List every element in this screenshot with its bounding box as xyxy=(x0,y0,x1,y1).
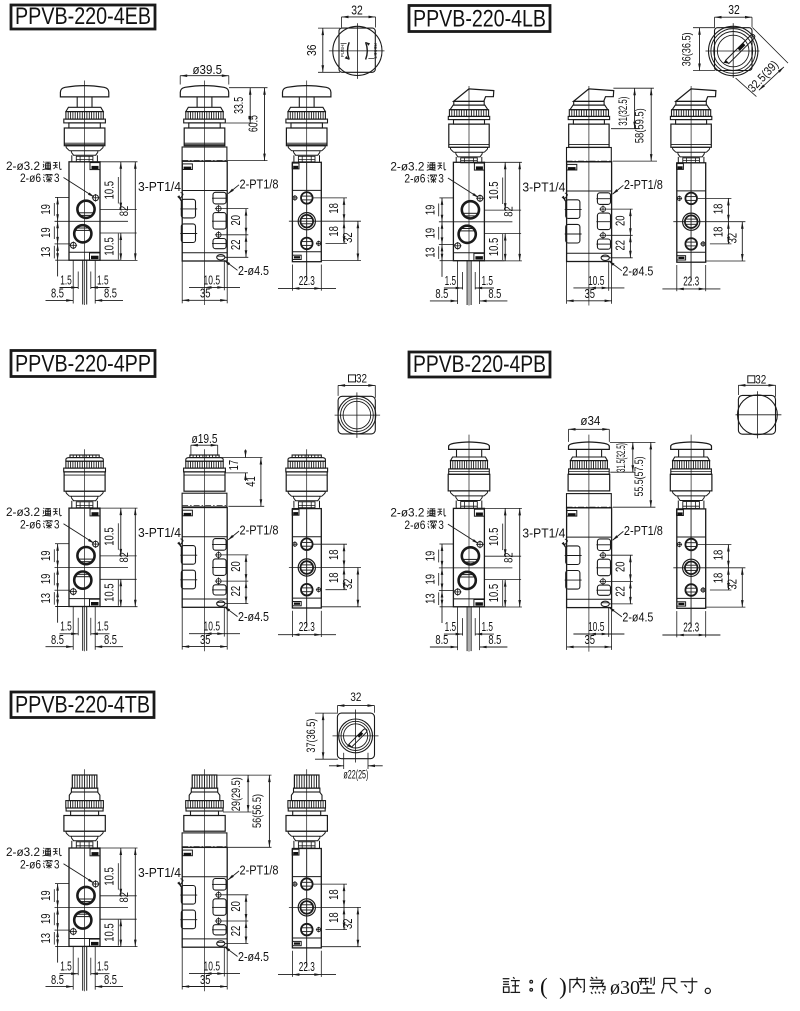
svg-text:PPVB-220-4PB: PPVB-220-4PB xyxy=(413,351,546,378)
svg-text:19: 19 xyxy=(422,551,437,562)
svg-text:1.5: 1.5 xyxy=(60,620,72,634)
svg-text:13: 13 xyxy=(422,593,437,604)
svg-text:60.5: 60.5 xyxy=(245,115,260,132)
svg-text:1.5: 1.5 xyxy=(60,960,72,974)
svg-text:18: 18 xyxy=(326,889,341,900)
svg-text:2-PT1/8: 2-PT1/8 xyxy=(624,178,663,192)
svg-text:2-ø4.5: 2-ø4.5 xyxy=(238,264,269,278)
svg-text:1.5: 1.5 xyxy=(97,620,109,634)
svg-text:2-ø4.5: 2-ø4.5 xyxy=(622,264,653,278)
svg-text:1.5: 1.5 xyxy=(481,620,493,634)
svg-text:22.3: 22.3 xyxy=(299,274,315,288)
svg-text:13: 13 xyxy=(38,247,53,258)
svg-text:2-ø6: 2-ø6 xyxy=(20,520,41,532)
svg-text:18: 18 xyxy=(710,227,725,238)
svg-text:3-PT1/4: 3-PT1/4 xyxy=(138,180,181,194)
svg-text:10.5: 10.5 xyxy=(102,237,117,255)
svg-text:3: 3 xyxy=(438,174,444,186)
svg-text:10.5: 10.5 xyxy=(204,273,221,287)
svg-text:2-ø3.2: 2-ø3.2 xyxy=(6,847,40,859)
svg-text:8.5: 8.5 xyxy=(435,633,448,647)
svg-text:32: 32 xyxy=(340,919,355,930)
svg-text:2-ø4.5: 2-ø4.5 xyxy=(238,950,269,964)
svg-text:PPVB-220-4LB: PPVB-220-4LB xyxy=(413,6,546,33)
svg-text:13: 13 xyxy=(422,247,437,258)
svg-text:10.5: 10.5 xyxy=(486,528,501,546)
svg-text:37(36.5): 37(36.5) xyxy=(304,719,318,753)
svg-text:2-PT1/8: 2-PT1/8 xyxy=(240,177,279,191)
svg-text:2-PT1/8: 2-PT1/8 xyxy=(624,524,663,538)
svg-text:19: 19 xyxy=(422,228,437,239)
svg-text:32: 32 xyxy=(350,690,361,704)
svg-text:3: 3 xyxy=(438,520,444,532)
svg-text:10.5: 10.5 xyxy=(102,527,117,545)
svg-text:18: 18 xyxy=(326,203,341,214)
svg-text:18: 18 xyxy=(710,550,725,561)
svg-text:20: 20 xyxy=(228,901,243,912)
svg-text:PUSH: PUSH xyxy=(340,45,345,58)
svg-text:32: 32 xyxy=(351,3,363,17)
svg-text:10.5: 10.5 xyxy=(486,238,501,256)
svg-text:PPVB-220-4TB: PPVB-220-4TB xyxy=(15,692,150,719)
svg-text:36(36.5): 36(36.5) xyxy=(680,32,694,66)
svg-text:ø39.5: ø39.5 xyxy=(193,63,223,77)
svg-text:8.5: 8.5 xyxy=(104,287,117,301)
svg-text:55.5(57.5): 55.5(57.5) xyxy=(632,456,646,496)
svg-text:20: 20 xyxy=(612,215,627,226)
svg-text:2-ø6: 2-ø6 xyxy=(404,174,425,186)
svg-text:1.5: 1.5 xyxy=(97,273,109,287)
svg-text:10.5: 10.5 xyxy=(204,960,221,974)
svg-text:2-ø3.2: 2-ø3.2 xyxy=(6,161,40,173)
svg-text:22: 22 xyxy=(228,240,243,251)
svg-text:35: 35 xyxy=(584,633,595,647)
svg-text:19: 19 xyxy=(38,550,53,561)
svg-text:2-ø4.5: 2-ø4.5 xyxy=(622,610,653,624)
svg-text:18: 18 xyxy=(710,573,725,584)
svg-text:35: 35 xyxy=(200,973,211,987)
svg-text:20: 20 xyxy=(228,215,243,226)
svg-text:3-PT1/4: 3-PT1/4 xyxy=(138,866,181,880)
svg-text:32: 32 xyxy=(356,374,367,386)
svg-text:22.3: 22.3 xyxy=(299,620,315,634)
svg-text:22.3: 22.3 xyxy=(683,620,699,634)
svg-text:2-ø6: 2-ø6 xyxy=(404,520,425,532)
svg-text:82: 82 xyxy=(117,552,131,563)
svg-text:22: 22 xyxy=(228,586,243,597)
svg-text:32: 32 xyxy=(728,3,740,17)
svg-text:17: 17 xyxy=(226,460,241,471)
svg-text:PPVB-220-4EB: PPVB-220-4EB xyxy=(15,3,151,30)
svg-text:82: 82 xyxy=(502,206,516,217)
svg-text:PPVB-220-4PP: PPVB-220-4PP xyxy=(15,351,151,378)
svg-text:36: 36 xyxy=(305,44,319,56)
svg-text:32: 32 xyxy=(724,579,739,590)
svg-text:56(56.5): 56(56.5) xyxy=(250,794,264,828)
svg-text:2-ø3.2: 2-ø3.2 xyxy=(390,507,424,519)
svg-text:3: 3 xyxy=(54,173,60,185)
svg-text:ø19.5: ø19.5 xyxy=(192,432,218,446)
svg-text:10.5: 10.5 xyxy=(102,867,117,885)
svg-text:82: 82 xyxy=(117,892,131,903)
svg-text:19: 19 xyxy=(422,205,437,216)
svg-text:32: 32 xyxy=(724,233,739,244)
svg-text:18: 18 xyxy=(710,204,725,215)
svg-text:3-PT1/4: 3-PT1/4 xyxy=(138,526,181,540)
svg-text:22: 22 xyxy=(612,586,627,597)
svg-text:29(29.5): 29(29.5) xyxy=(229,777,243,811)
svg-text:1.5: 1.5 xyxy=(60,273,72,287)
svg-text:31.5(32.5): 31.5(32.5) xyxy=(616,443,628,472)
svg-text:41: 41 xyxy=(243,476,258,487)
svg-text:35: 35 xyxy=(200,633,211,647)
svg-text:3-PT1/4: 3-PT1/4 xyxy=(522,180,565,194)
svg-text:32: 32 xyxy=(755,375,766,387)
svg-text:1.5: 1.5 xyxy=(481,274,493,288)
svg-text:22: 22 xyxy=(612,240,627,251)
svg-text:82: 82 xyxy=(502,552,516,563)
svg-text:20: 20 xyxy=(228,561,243,572)
svg-text:2-PT1/8: 2-PT1/8 xyxy=(240,524,279,538)
svg-text:ø30: ø30 xyxy=(610,977,640,999)
svg-text:19: 19 xyxy=(38,204,53,215)
svg-text:20: 20 xyxy=(612,562,627,573)
svg-text:2-ø3.2: 2-ø3.2 xyxy=(6,507,40,519)
svg-text:ø34: ø34 xyxy=(580,414,600,428)
svg-text:( ): ( ) xyxy=(540,974,567,999)
svg-text:2-ø6: 2-ø6 xyxy=(20,173,41,185)
svg-text:3: 3 xyxy=(54,520,60,532)
svg-text:8.5: 8.5 xyxy=(104,973,117,987)
svg-text:19: 19 xyxy=(38,227,53,238)
svg-text:2-ø3.2: 2-ø3.2 xyxy=(390,161,424,173)
svg-text:32: 32 xyxy=(340,579,355,590)
svg-text:2-ø4.5: 2-ø4.5 xyxy=(238,610,269,624)
svg-text:13: 13 xyxy=(38,593,53,604)
svg-text:2-ø6: 2-ø6 xyxy=(20,859,41,871)
svg-text:1.5: 1.5 xyxy=(97,960,109,974)
svg-text:19: 19 xyxy=(38,890,53,901)
svg-text:8.5: 8.5 xyxy=(51,973,64,987)
svg-text:18: 18 xyxy=(326,572,341,583)
svg-text:82: 82 xyxy=(117,206,131,217)
svg-text:22: 22 xyxy=(228,926,243,937)
svg-text:31(32.5): 31(32.5) xyxy=(616,97,630,126)
svg-text:3-PT1/4: 3-PT1/4 xyxy=(522,526,565,540)
svg-text:1.5: 1.5 xyxy=(445,274,457,288)
svg-text:10.5: 10.5 xyxy=(102,923,117,941)
svg-text:19: 19 xyxy=(38,914,53,925)
svg-text:8.5: 8.5 xyxy=(51,287,64,301)
svg-text:35: 35 xyxy=(584,287,595,301)
svg-text:8.5: 8.5 xyxy=(104,633,117,647)
svg-text:1.5: 1.5 xyxy=(445,620,457,634)
svg-text:10.5: 10.5 xyxy=(588,620,605,634)
svg-text:18: 18 xyxy=(326,549,341,560)
svg-text:3: 3 xyxy=(54,859,60,871)
svg-text:10.5: 10.5 xyxy=(588,274,605,288)
svg-text:19: 19 xyxy=(422,574,437,585)
svg-text:8.5: 8.5 xyxy=(51,633,64,647)
svg-text:58(59.5): 58(59.5) xyxy=(632,108,646,143)
svg-text:18: 18 xyxy=(326,226,341,237)
svg-text:19: 19 xyxy=(38,574,53,585)
svg-text:RESET: RESET xyxy=(373,43,378,59)
svg-text:10.5: 10.5 xyxy=(102,181,117,199)
svg-text:10.5: 10.5 xyxy=(486,182,501,200)
svg-text:10.5: 10.5 xyxy=(102,584,117,602)
svg-text:10.5: 10.5 xyxy=(204,620,221,634)
svg-text:8.5: 8.5 xyxy=(435,287,448,301)
svg-text:18: 18 xyxy=(326,912,341,923)
svg-text:33.5: 33.5 xyxy=(231,97,246,114)
svg-text:32: 32 xyxy=(340,232,355,243)
svg-text:35: 35 xyxy=(200,287,211,301)
svg-text:2-PT1/8: 2-PT1/8 xyxy=(240,864,279,878)
svg-text:8.5: 8.5 xyxy=(488,287,501,301)
svg-text:8.5: 8.5 xyxy=(488,633,501,647)
svg-text:ø22(25): ø22(25) xyxy=(343,769,368,781)
svg-text:13: 13 xyxy=(38,933,53,944)
svg-text:22.3: 22.3 xyxy=(683,274,699,288)
svg-text:22.3: 22.3 xyxy=(299,960,315,974)
svg-text:10.5: 10.5 xyxy=(486,584,501,602)
